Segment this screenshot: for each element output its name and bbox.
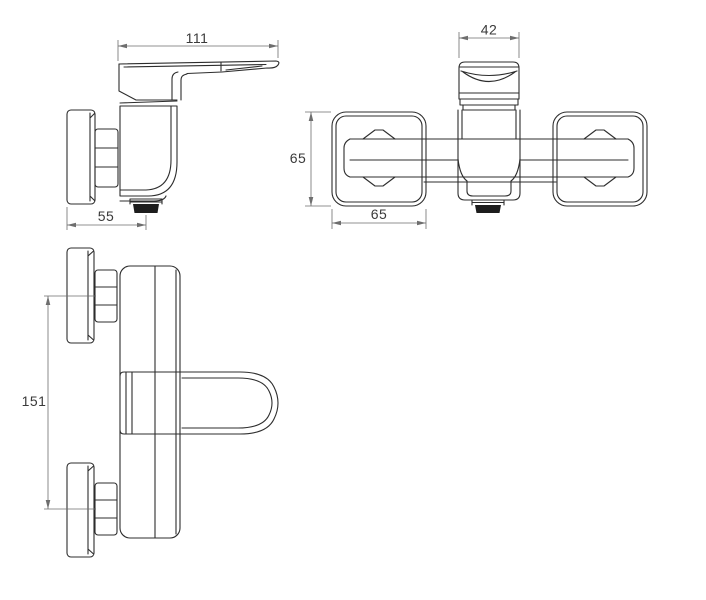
lever-handle-plan — [120, 372, 278, 434]
connection-nut-plan-top — [95, 270, 117, 322]
wall-flange-plan-top — [67, 248, 94, 343]
supply-tube-front — [344, 139, 634, 182]
dim-label-front-handle-width: 42 — [481, 22, 498, 38]
drawing-svg: 111 55 — [0, 0, 706, 600]
technical-drawing: 111 55 — [0, 0, 706, 600]
outlet-nozzle-front — [472, 200, 504, 213]
dimension-front-escutcheon-width: 65 — [332, 206, 426, 229]
connection-nut-side — [95, 129, 118, 187]
dimension-plan-connection-centers: 151 — [22, 296, 96, 509]
dim-label-front-escutcheon-width: 65 — [371, 206, 388, 222]
side-view-parts — [67, 61, 279, 213]
lever-handle-side — [119, 61, 279, 103]
dim-label-front-escutcheon-height: 65 — [290, 150, 307, 166]
dim-label-side-depth: 55 — [98, 208, 115, 224]
mixer-body-side — [120, 106, 177, 201]
dim-label-side-width: 111 — [186, 30, 209, 46]
wall-flange-plan-bottom — [67, 463, 94, 557]
dimension-side-width: 111 — [118, 30, 278, 61]
front-view-parts — [332, 62, 647, 213]
wall-flange-side — [67, 110, 95, 204]
dim-label-plan-connection-centers: 151 — [22, 393, 47, 409]
right-escutcheon-front — [553, 112, 647, 206]
dimension-front-escutcheon-height: 65 — [290, 112, 331, 206]
connection-nut-plan-bottom — [95, 483, 117, 535]
dimension-front-handle-width: 42 — [459, 22, 519, 59]
left-escutcheon-front — [332, 112, 426, 206]
plan-view: 151 — [22, 248, 278, 557]
plan-view-parts — [67, 248, 278, 557]
lever-handle-front — [459, 62, 519, 110]
mixer-body-plan — [120, 266, 180, 538]
mixer-body-front — [458, 110, 520, 200]
front-view: 42 65 65 — [290, 22, 647, 230]
side-view: 111 55 — [67, 30, 279, 230]
